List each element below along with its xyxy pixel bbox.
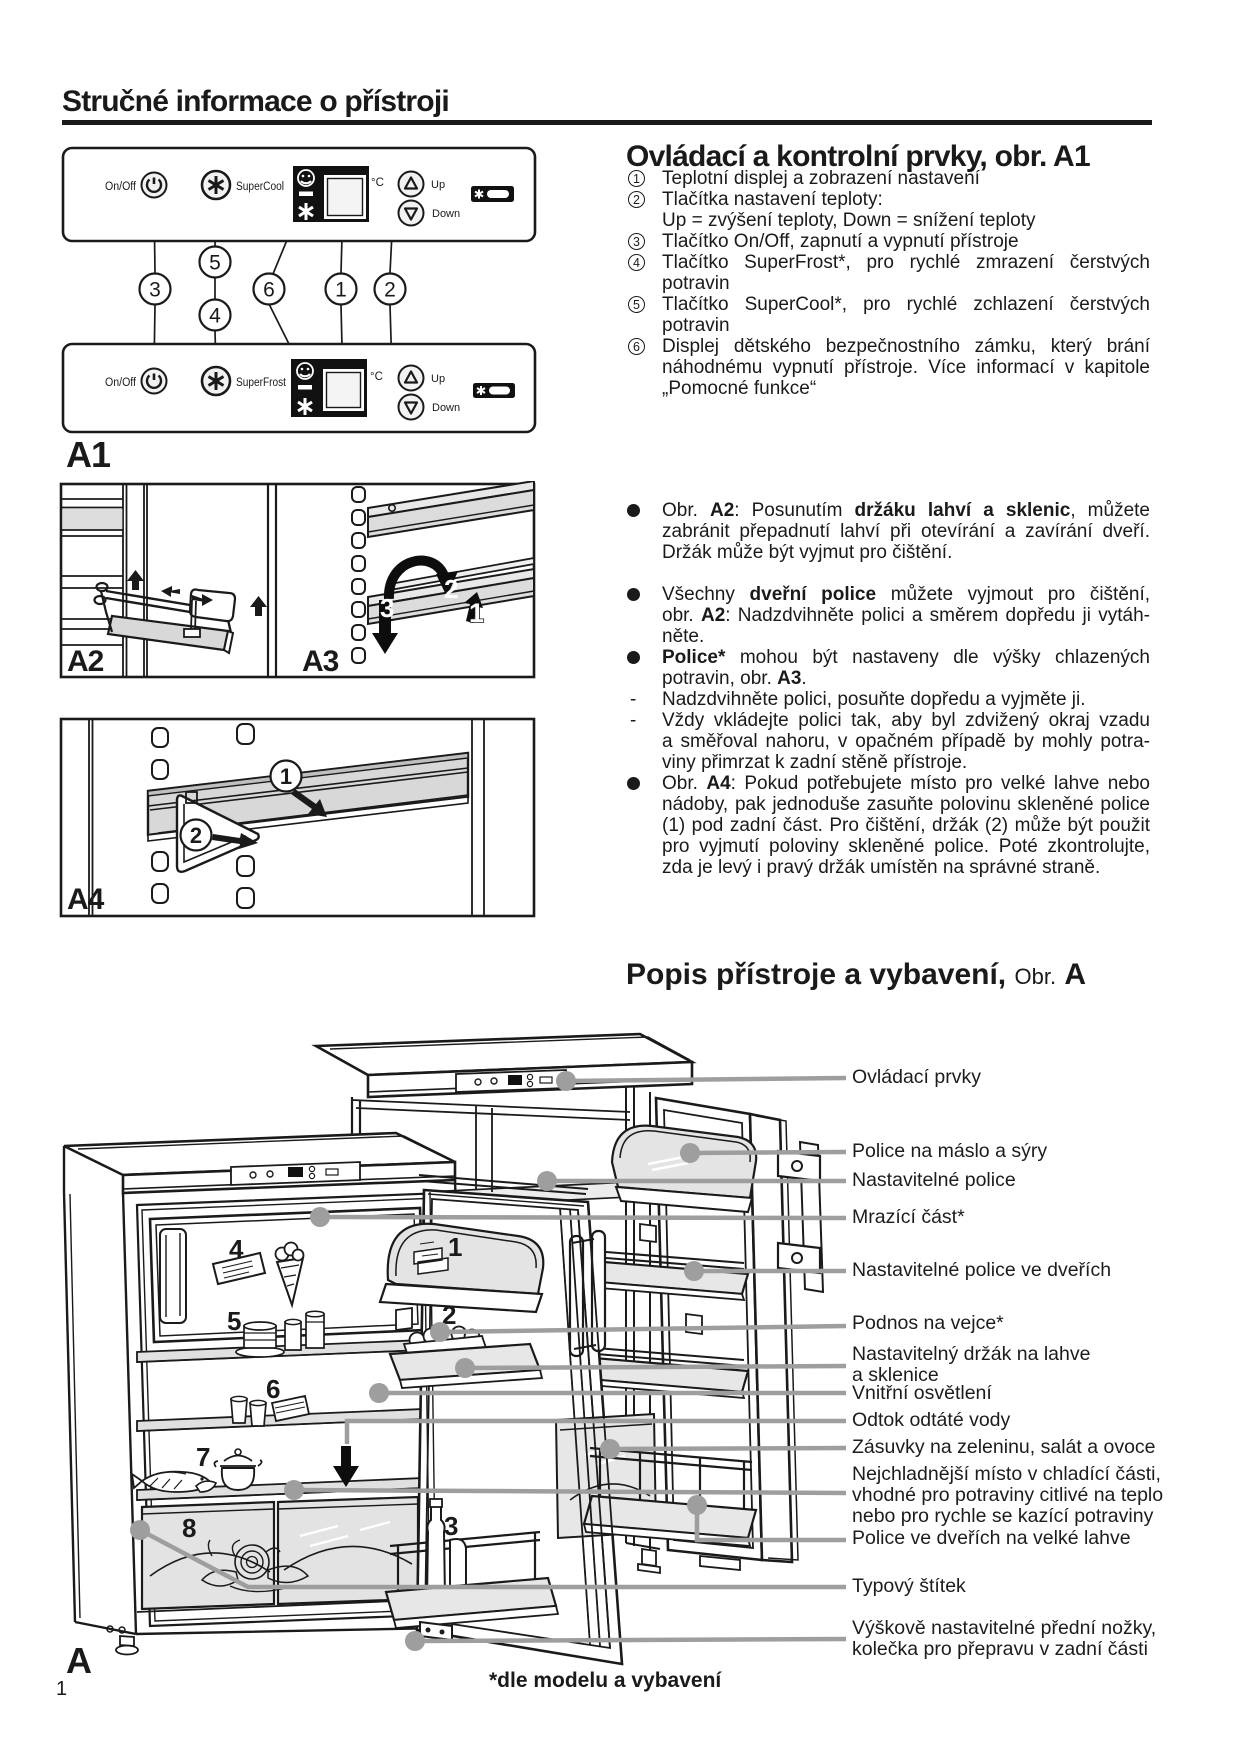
svg-text:A4: A4: [67, 883, 105, 916]
svg-text:1: 1: [335, 279, 347, 302]
svg-text:A2: A2: [67, 645, 104, 678]
svg-text:2: 2: [384, 279, 396, 302]
svg-text:2: 2: [444, 574, 458, 604]
svg-text:SuperCool: SuperCool: [236, 181, 284, 193]
svg-text:Up: Up: [431, 179, 445, 191]
svg-text:6: 6: [266, 1374, 280, 1404]
svg-text:Down: Down: [432, 402, 460, 414]
svg-text:6: 6: [263, 279, 275, 302]
svg-text:5: 5: [227, 1306, 241, 1336]
svg-text:2: 2: [190, 823, 202, 848]
svg-text:°C: °C: [370, 371, 383, 383]
svg-text:°C: °C: [371, 177, 384, 189]
svg-text:On/Off: On/Off: [105, 377, 137, 389]
svg-text:1: 1: [448, 1232, 462, 1262]
svg-text:3: 3: [380, 593, 394, 623]
svg-text:SuperFrost: SuperFrost: [236, 377, 287, 389]
svg-text:1: 1: [280, 764, 292, 789]
svg-text:Up: Up: [431, 373, 445, 385]
svg-text:8: 8: [182, 1513, 196, 1543]
svg-text:7: 7: [196, 1442, 210, 1472]
svg-text:Down: Down: [432, 208, 460, 220]
svg-text:3: 3: [444, 1511, 458, 1541]
svg-text:A1: A1: [66, 434, 111, 475]
svg-text:On/Off: On/Off: [105, 181, 137, 193]
svg-text:A3: A3: [302, 645, 339, 678]
svg-text:1: 1: [469, 598, 484, 628]
svg-text:3: 3: [149, 279, 161, 302]
svg-text:5: 5: [209, 252, 221, 275]
svg-text:4: 4: [209, 305, 221, 328]
